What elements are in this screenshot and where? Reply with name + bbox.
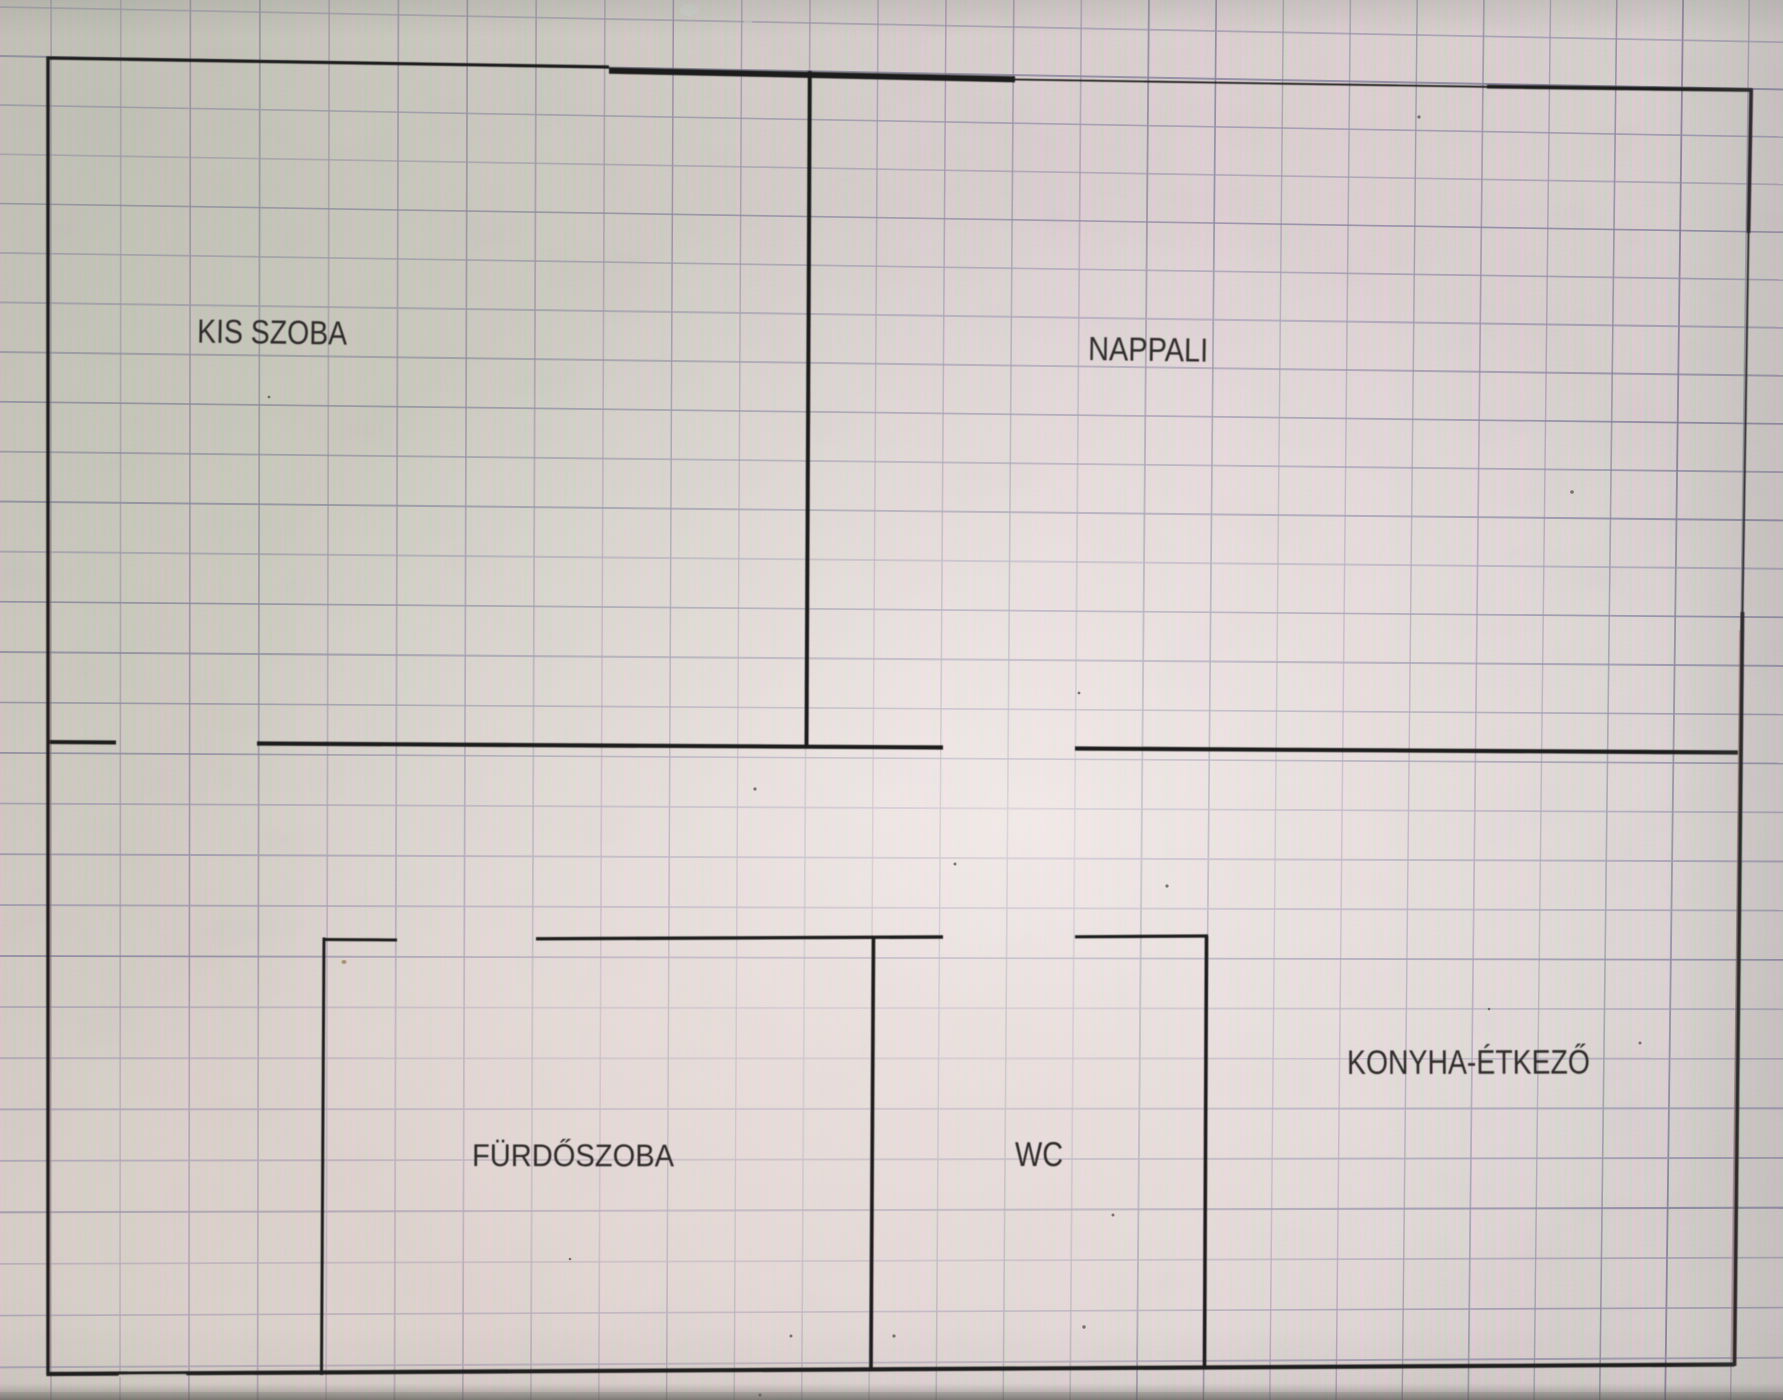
svg-text:KIS SZOBA: KIS SZOBA: [197, 314, 348, 353]
svg-text:FÜRDŐSZOBA: FÜRDŐSZOBA: [472, 1137, 674, 1173]
svg-text:NAPPALI: NAPPALI: [1088, 331, 1209, 370]
svg-text:KONYHA-ÉTKEZŐ: KONYHA-ÉTKEZŐ: [1347, 1043, 1590, 1082]
svg-text:WC: WC: [1015, 1136, 1063, 1174]
